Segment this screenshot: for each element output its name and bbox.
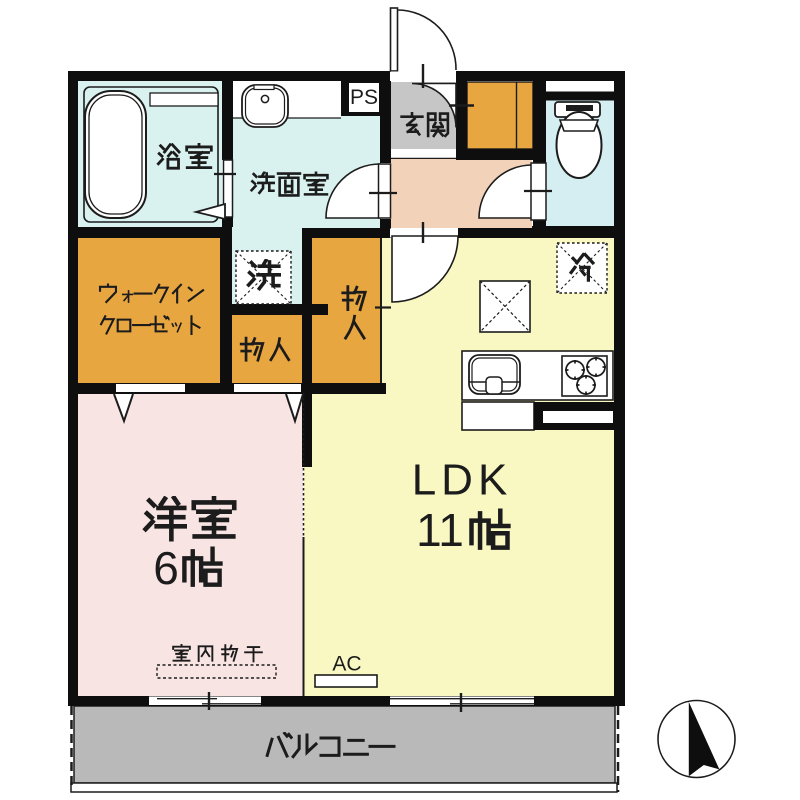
svg-text:AC: AC	[332, 653, 361, 676]
svg-text:11: 11	[416, 504, 464, 556]
svg-text:PS: PS	[350, 86, 378, 109]
svg-text:LDK: LDK	[412, 456, 513, 505]
svg-text:6: 6	[153, 542, 179, 594]
